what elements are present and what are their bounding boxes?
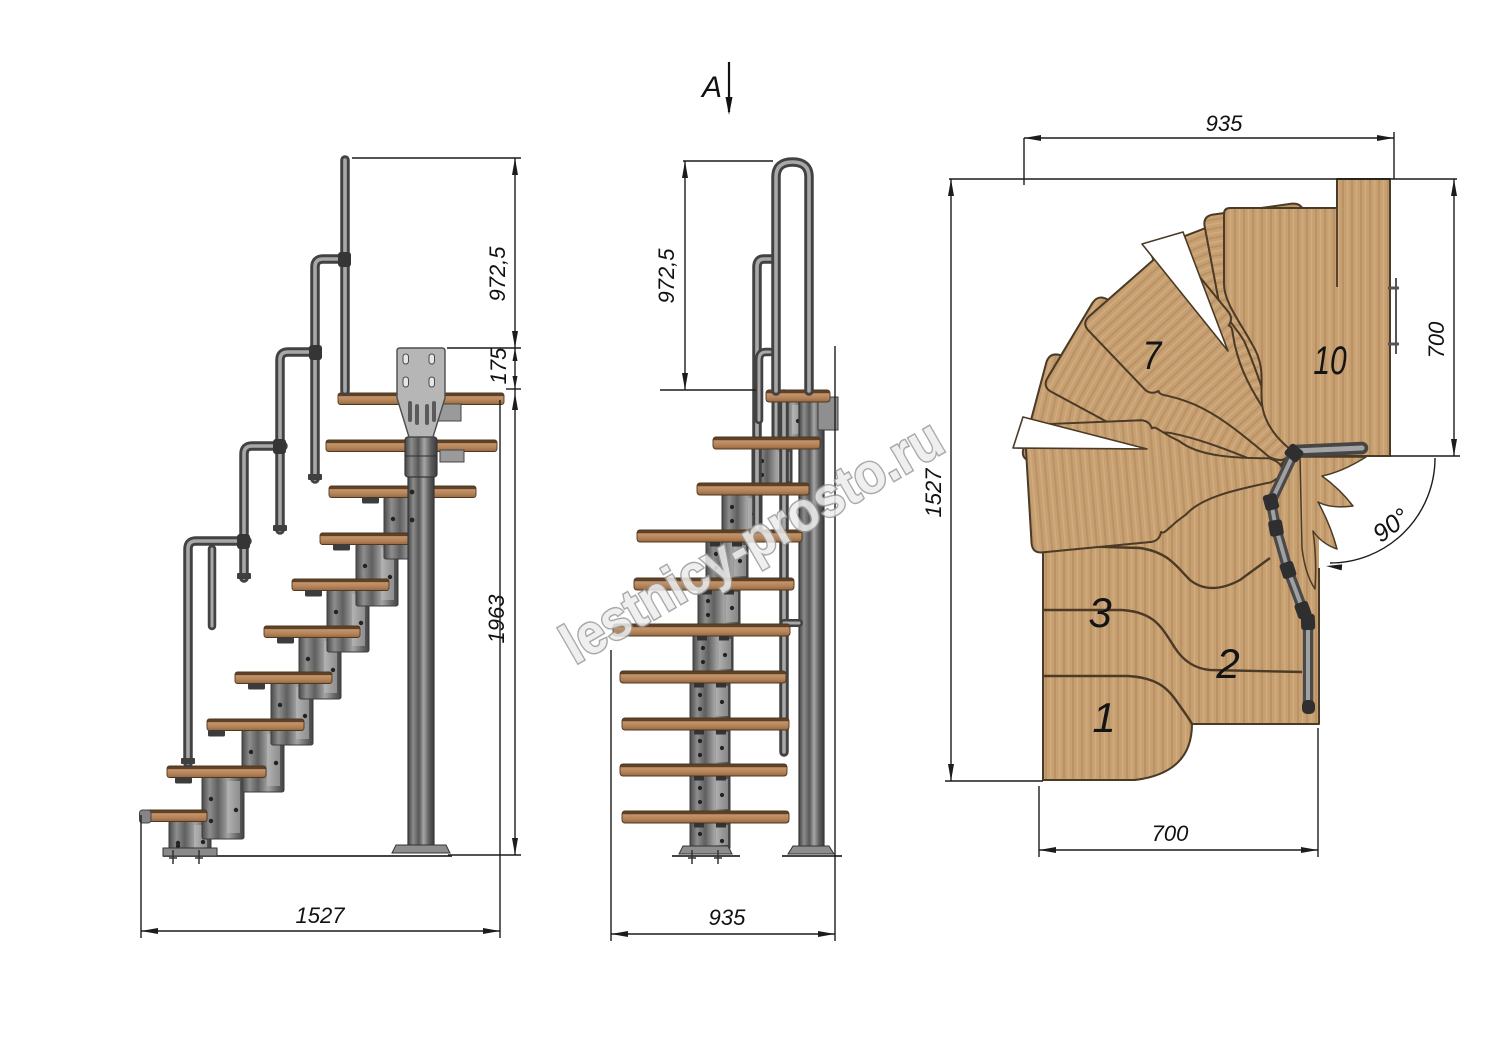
svg-text:A: A xyxy=(700,71,722,104)
svg-text:175: 175 xyxy=(486,347,511,384)
svg-text:10: 10 xyxy=(1313,339,1347,383)
svg-text:935: 935 xyxy=(709,905,746,930)
svg-text:700: 700 xyxy=(1152,821,1189,846)
svg-text:972,5: 972,5 xyxy=(654,248,679,304)
svg-text:2: 2 xyxy=(1215,640,1239,687)
svg-text:700: 700 xyxy=(1424,321,1449,358)
svg-text:1527: 1527 xyxy=(296,903,346,928)
svg-text:7: 7 xyxy=(1143,332,1163,377)
svg-text:1: 1 xyxy=(1092,694,1115,741)
svg-text:935: 935 xyxy=(1206,111,1243,136)
svg-text:972,5: 972,5 xyxy=(485,246,510,302)
svg-text:3: 3 xyxy=(1088,589,1111,636)
svg-text:1963: 1963 xyxy=(484,594,509,644)
